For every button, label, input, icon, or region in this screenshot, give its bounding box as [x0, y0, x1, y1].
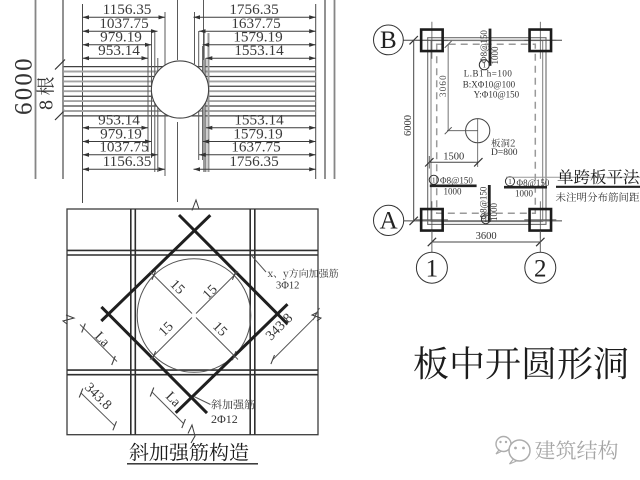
svg-text:1000: 1000: [444, 186, 463, 196]
svg-text:Φ8@150: Φ8@150: [440, 176, 473, 186]
svg-text:1: 1: [426, 256, 439, 283]
svg-text:1000: 1000: [515, 189, 534, 199]
svg-text:1: 1: [508, 177, 512, 186]
svg-text:953.14: 953.14: [98, 42, 140, 59]
svg-text:1553.14: 1553.14: [234, 42, 284, 59]
svg-text:1756.35: 1756.35: [229, 153, 278, 170]
svg-text:1: 1: [484, 215, 488, 224]
svg-text:1500: 1500: [443, 151, 464, 162]
svg-text:B: B: [380, 27, 397, 54]
svg-text:2Φ12: 2Φ12: [211, 412, 238, 426]
svg-text:B:XΦ10@100: B:XΦ10@100: [463, 80, 516, 90]
svg-text:6000: 6000: [11, 56, 38, 115]
svg-text:8: 8: [36, 100, 58, 110]
svg-text:A: A: [380, 208, 398, 235]
svg-text:6000: 6000: [403, 115, 414, 136]
svg-text:3Φ12: 3Φ12: [276, 281, 299, 292]
svg-text:2: 2: [534, 256, 547, 283]
svg-text:L.B1 h=100: L.B1 h=100: [464, 69, 513, 79]
svg-text:D=800: D=800: [491, 148, 518, 158]
svg-text:3060: 3060: [438, 74, 448, 97]
svg-text:3600: 3600: [476, 231, 497, 242]
svg-text:Φ8@150: Φ8@150: [479, 30, 489, 63]
svg-text:Y:Φ10@150: Y:Φ10@150: [474, 90, 520, 100]
svg-text:1156.35: 1156.35: [103, 153, 152, 170]
svg-text:1: 1: [432, 176, 436, 185]
svg-text:1000: 1000: [490, 46, 500, 65]
